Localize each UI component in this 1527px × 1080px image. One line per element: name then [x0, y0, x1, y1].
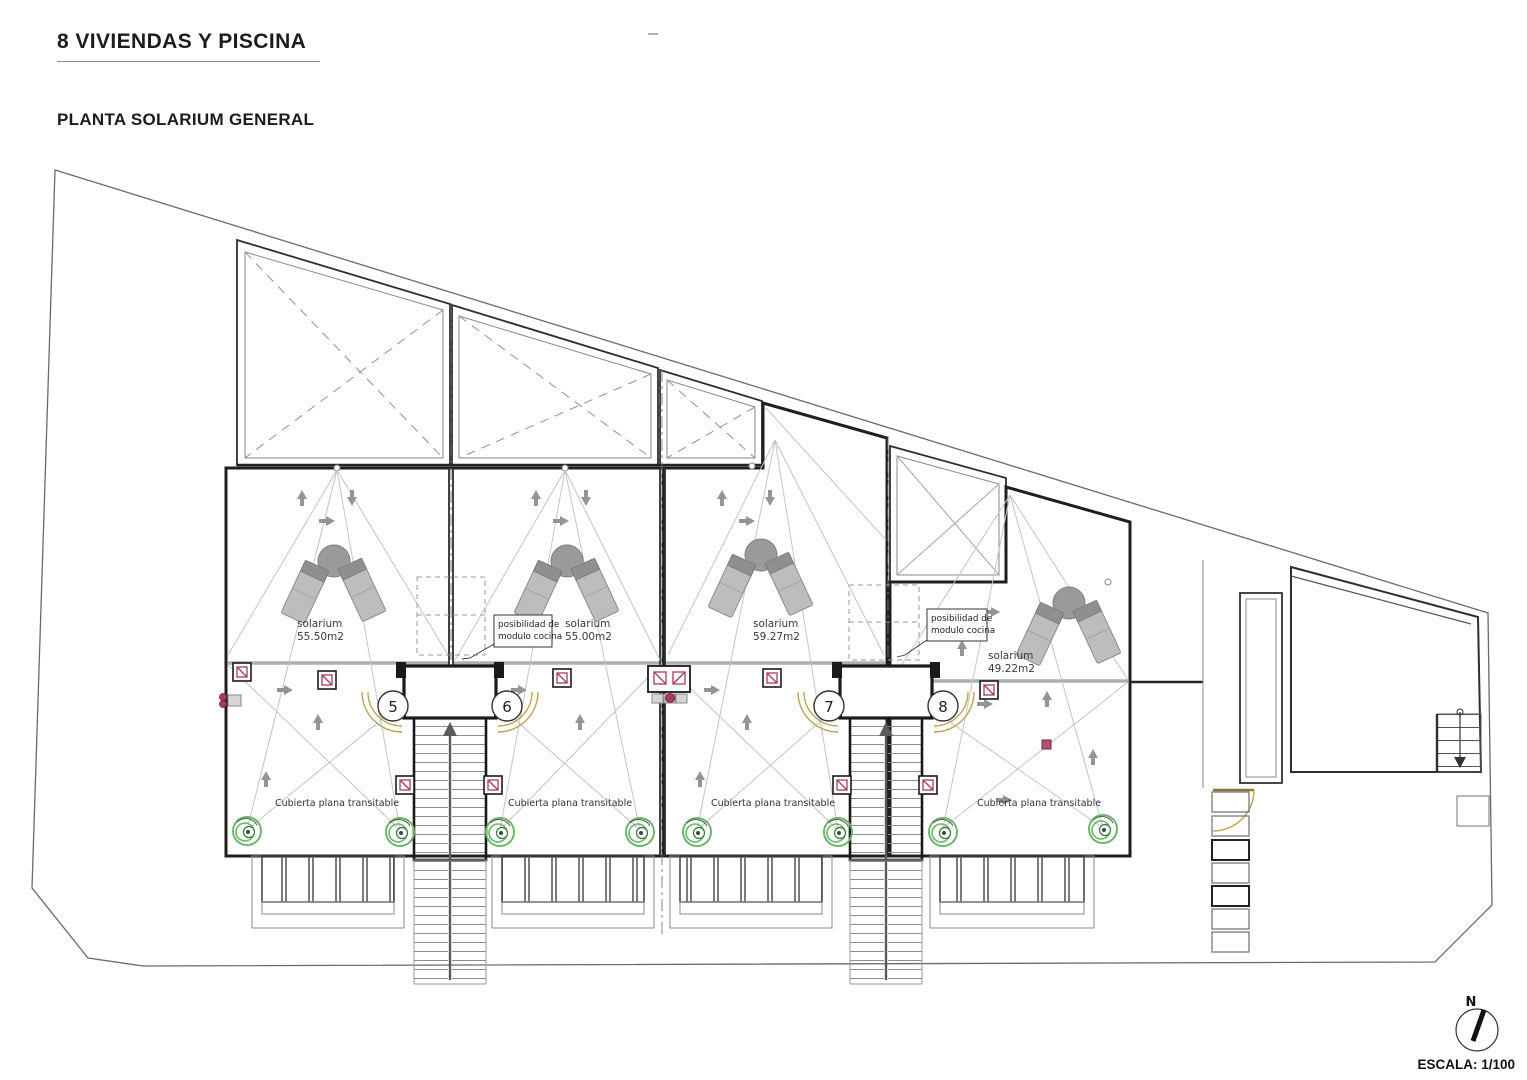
drain-symbols	[233, 815, 1117, 846]
unit-6-roof-label: Cubierta plana transitable	[508, 798, 632, 809]
pergolas	[252, 856, 1094, 928]
unit-8-area-label: 49.22m2	[988, 663, 1035, 675]
unit-6-solarium-label: solarium	[565, 618, 610, 630]
braced-roof-blocks	[237, 240, 1006, 582]
compass-needle	[1473, 1010, 1484, 1041]
floor-plan-drawing: 5 6 7 8	[0, 0, 1527, 1080]
kitchen-note-line1: posibilidad de	[931, 614, 992, 624]
unit-5-solarium-label: solarium	[297, 618, 342, 630]
pergola-1	[252, 856, 404, 928]
kitchen-note-line2: modulo cocina	[498, 632, 562, 642]
slope-arrows	[261, 490, 1098, 805]
pergola-3	[670, 856, 832, 928]
unit-7-roof-label: Cubierta plana transitable	[711, 798, 835, 809]
unit-areas	[226, 370, 1203, 934]
exterior-steps	[1212, 792, 1249, 952]
pool-stair	[1437, 709, 1481, 772]
unit-5-roof-label: Cubierta plana transitable	[275, 798, 399, 809]
roof-block-2	[452, 305, 658, 465]
right-zone	[1212, 567, 1489, 952]
small-pad	[1457, 796, 1489, 826]
pergola-2	[492, 856, 654, 928]
unit-6-area-label: 55.00m2	[565, 631, 612, 643]
unit-5-area-label: 55.50m2	[297, 631, 344, 643]
sun-loungers	[281, 539, 1121, 666]
roof-block-4	[890, 446, 1006, 582]
unit-7-number: 7	[824, 698, 834, 716]
plan-sheet: 8 VIVIENDAS Y PISCINA PLANTA SOLARIUM GE…	[0, 0, 1527, 1080]
roof-block-1	[237, 240, 450, 465]
stair-core-7-8: 7 8	[798, 662, 974, 984]
unit-7-area-label: 59.27m2	[753, 631, 800, 643]
kitchen-module-zones	[417, 577, 919, 660]
door-swing	[1213, 790, 1254, 831]
unit-8-number: 8	[938, 698, 948, 716]
north-compass: N	[1456, 995, 1498, 1051]
roof-labels: Cubierta plana transitable Cubierta plan…	[275, 798, 1101, 809]
kitchen-note-line1: posibilidad de	[498, 620, 559, 630]
scale-label: ESCALA: 1/100	[1417, 1057, 1515, 1072]
unit-5-number: 5	[388, 698, 398, 716]
unit-6-number: 6	[502, 698, 512, 716]
north-label: N	[1466, 995, 1477, 1010]
party-wall-meter-box	[648, 666, 690, 703]
unit-8-solarium-label: solarium	[988, 650, 1033, 662]
pool-terrace	[1291, 567, 1481, 772]
unit-7-solarium-label: solarium	[753, 618, 798, 630]
unit-8-roof-label: Cubierta plana transitable	[977, 798, 1101, 809]
kitchen-note-line2: modulo cocina	[931, 626, 995, 636]
pergola-4	[930, 856, 1094, 928]
